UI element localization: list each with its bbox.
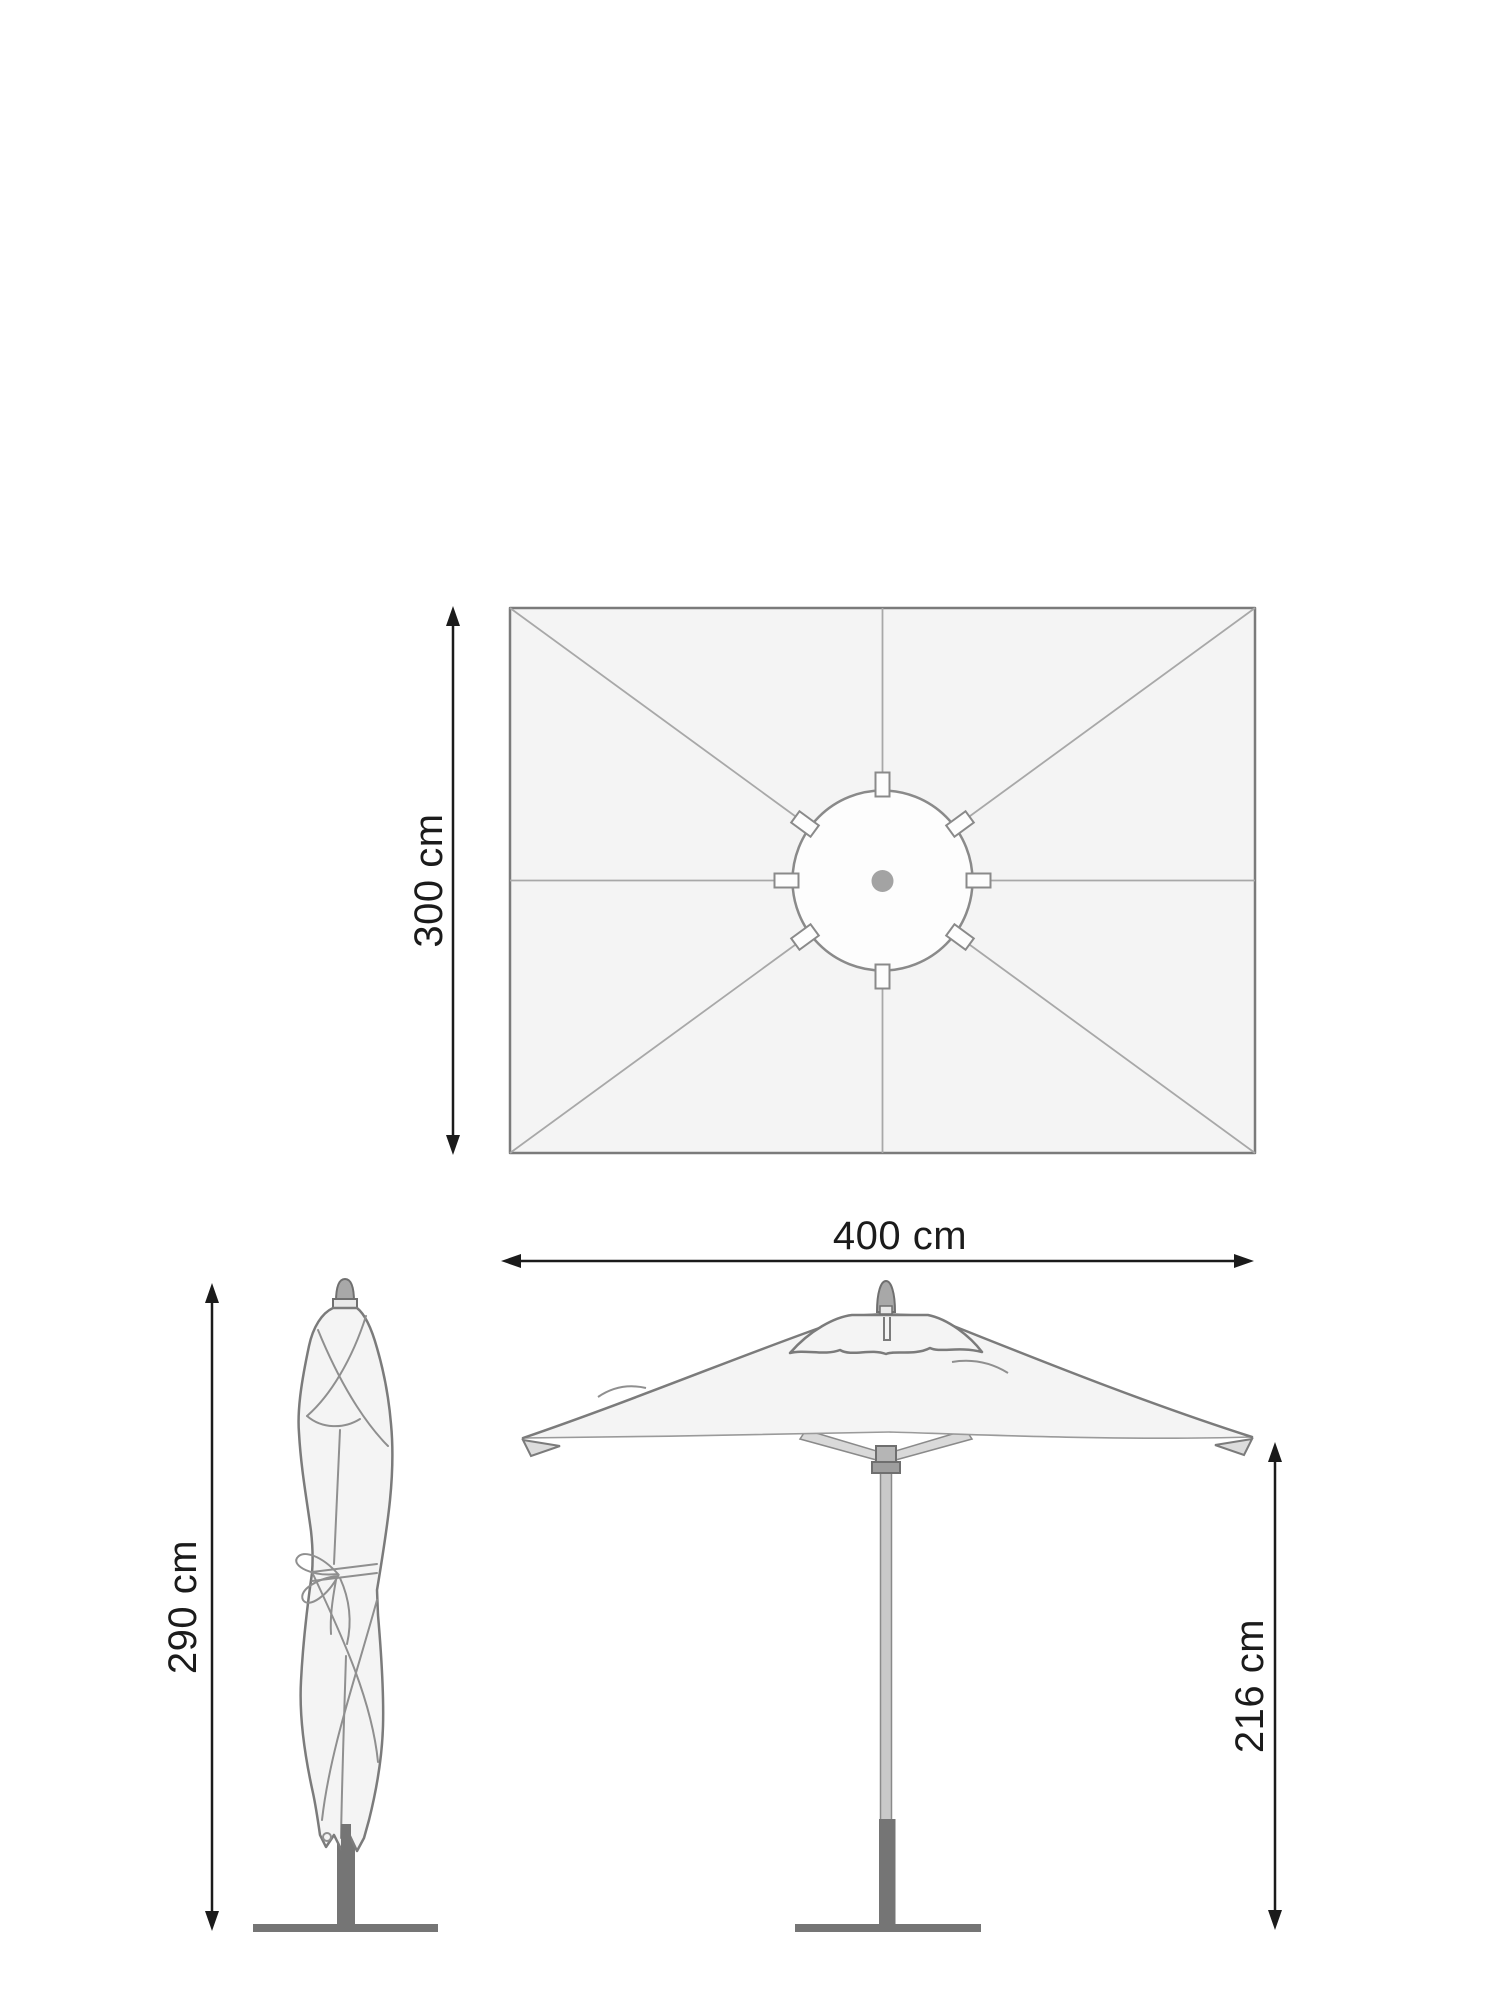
dimension-open-clearance: 216 cm bbox=[1228, 1442, 1282, 1930]
finial-collar bbox=[333, 1299, 357, 1308]
arrowhead-up-icon bbox=[205, 1283, 219, 1303]
dimension-closed-height: 290 cm bbox=[161, 1283, 219, 1931]
pole-sleeve-gap bbox=[341, 1824, 351, 1850]
arrowhead-up-icon bbox=[1268, 1442, 1282, 1462]
top-view-depth-label: 300 cm bbox=[407, 813, 451, 947]
pole-hole bbox=[872, 870, 894, 892]
hub-flange bbox=[872, 1462, 900, 1473]
umbrella-base bbox=[795, 1924, 981, 1932]
arrowhead-left-icon bbox=[501, 1254, 521, 1268]
top-view-canopy bbox=[510, 608, 1255, 1153]
arrowhead-right-icon bbox=[1234, 1254, 1254, 1268]
right-tip-pocket bbox=[1215, 1439, 1252, 1455]
finial-collar bbox=[880, 1306, 892, 1314]
arrowhead-down-icon bbox=[446, 1135, 460, 1155]
folded-umbrella-illustration bbox=[253, 1279, 438, 1932]
apex-slit bbox=[884, 1317, 890, 1340]
dimension-top-view-width: 400 cm bbox=[501, 1214, 1254, 1268]
closed-height-label: 290 cm bbox=[161, 1540, 205, 1674]
umbrella-base bbox=[253, 1924, 438, 1932]
arrowhead-down-icon bbox=[1268, 1910, 1282, 1930]
pole bbox=[881, 1462, 892, 1822]
arrowhead-down-icon bbox=[205, 1911, 219, 1931]
parasol-dimension-page: 300 cm 400 cm 290 cm bbox=[0, 0, 1500, 1998]
arrowhead-up-icon bbox=[446, 606, 460, 626]
pole-sleeve bbox=[879, 1819, 896, 1925]
open-clearance-label: 216 cm bbox=[1228, 1619, 1272, 1753]
dimension-top-view-depth: 300 cm bbox=[407, 606, 460, 1155]
top-view-width-label: 400 cm bbox=[833, 1214, 967, 1258]
left-tip-pocket bbox=[523, 1440, 560, 1456]
open-umbrella-illustration bbox=[523, 1281, 1252, 1932]
umbrella-dimensions-diagram: 300 cm 400 cm 290 cm bbox=[0, 0, 1500, 1998]
